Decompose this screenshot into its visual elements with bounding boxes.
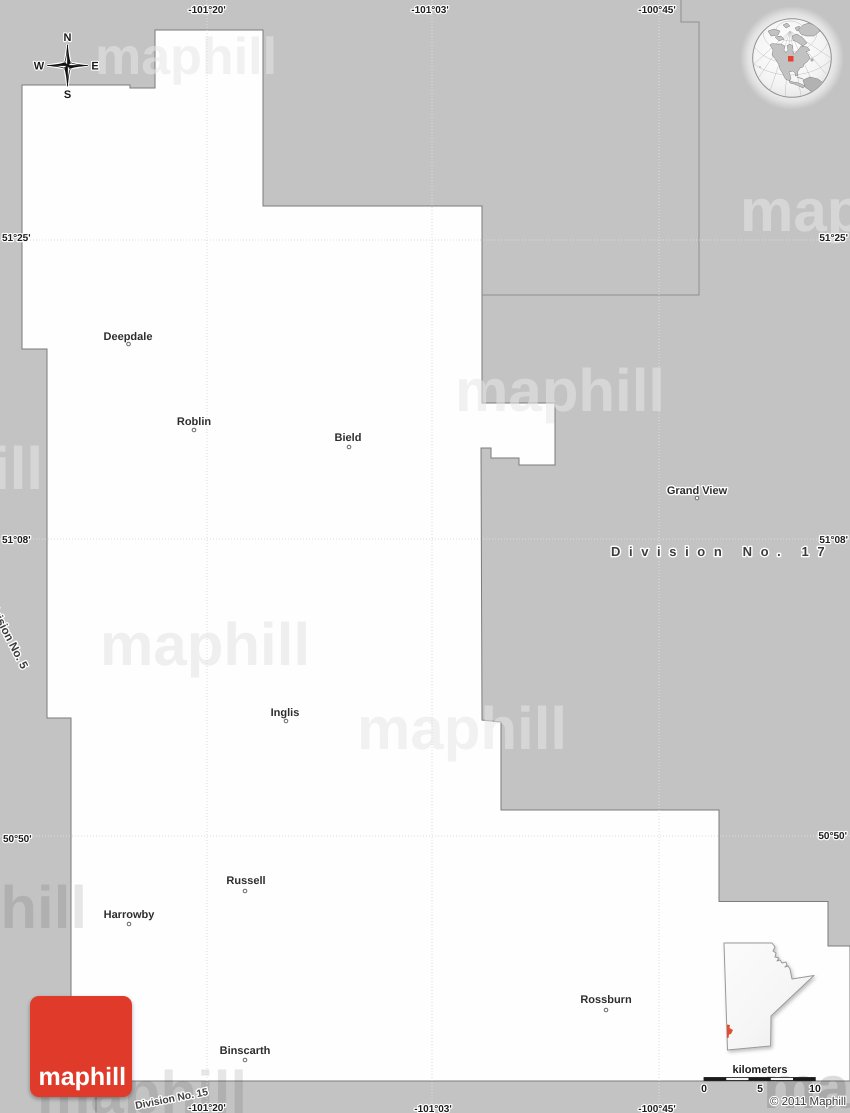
svg-text:Harrowby: Harrowby xyxy=(104,909,156,921)
svg-text:Russell: Russell xyxy=(226,875,265,887)
svg-text:-101°20': -101°20' xyxy=(188,1103,226,1113)
svg-text:maphill: maphill xyxy=(0,874,87,941)
svg-text:maphill: maphill xyxy=(357,695,567,762)
svg-text:W: W xyxy=(34,61,45,73)
svg-text:50°50': 50°50' xyxy=(3,834,32,845)
svg-text:50°50': 50°50' xyxy=(818,831,847,842)
svg-text:maphill: maphill xyxy=(39,1063,127,1091)
svg-text:© 2011 Maphill: © 2011 Maphill xyxy=(770,1096,846,1108)
svg-text:Inglis: Inglis xyxy=(271,707,300,719)
svg-text:Deepdale: Deepdale xyxy=(104,331,153,343)
svg-text:Division No. 17: Division No. 17 xyxy=(611,544,833,559)
svg-text:-101°20': -101°20' xyxy=(188,5,226,16)
svg-text:maphill: maphill xyxy=(100,611,310,678)
svg-text:51°25': 51°25' xyxy=(2,233,31,244)
svg-text:10: 10 xyxy=(809,1083,821,1095)
svg-text:Rossburn: Rossburn xyxy=(580,994,632,1006)
svg-text:maphill: maphill xyxy=(95,28,277,86)
svg-text:maphill: maphill xyxy=(455,357,665,424)
svg-text:N: N xyxy=(64,32,72,44)
svg-text:51°25': 51°25' xyxy=(819,233,848,244)
svg-text:Binscarth: Binscarth xyxy=(220,1045,271,1057)
svg-text:51°08': 51°08' xyxy=(2,535,31,546)
svg-text:-100°45': -100°45' xyxy=(638,5,676,16)
svg-text:S: S xyxy=(64,89,71,101)
svg-text:E: E xyxy=(91,61,98,73)
svg-text:maphill: maphill xyxy=(0,435,43,502)
svg-text:-100°45': -100°45' xyxy=(638,1104,676,1113)
svg-text:kilometers: kilometers xyxy=(732,1064,787,1076)
svg-text:5: 5 xyxy=(757,1083,763,1095)
svg-text:Grand View: Grand View xyxy=(667,485,728,497)
svg-text:-101°03': -101°03' xyxy=(411,5,449,16)
svg-text:Roblin: Roblin xyxy=(177,416,211,428)
svg-text:Bield: Bield xyxy=(335,432,362,444)
svg-text:-101°03': -101°03' xyxy=(414,1104,452,1113)
svg-text:0: 0 xyxy=(701,1083,707,1095)
